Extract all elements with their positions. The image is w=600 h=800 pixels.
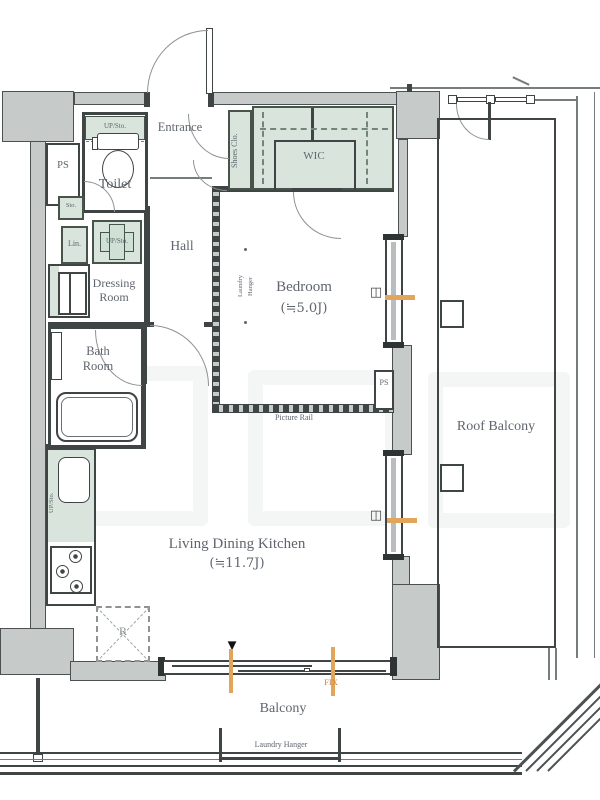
wic-inner-outline: [274, 140, 356, 190]
wic-divider: [311, 108, 314, 142]
bathtub-inner: [61, 397, 133, 437]
label-wic: WIC: [292, 150, 336, 163]
balcony-corner-diagonal: [513, 677, 600, 772]
wall-south-band: [70, 661, 166, 681]
label-up-sto-kitchen: UP/Sto.: [48, 474, 59, 532]
hall-ldk-door-panel: [142, 322, 147, 384]
hall-ldk-door-arc: [150, 325, 209, 386]
label-bedroom-size: (≒5.0J): [257, 301, 351, 317]
label-laundry-hanger-balcony: Laundry Hanger: [244, 740, 318, 750]
washing-machine: [58, 272, 87, 315]
window-end-cap: [390, 657, 397, 676]
label-ldk: Living Dining Kitchen: [148, 535, 326, 553]
label-lin: Lin.: [61, 239, 88, 249]
label-bedroom: Bedroom: [252, 278, 356, 296]
roof-balcony-top-tick: [512, 76, 529, 85]
stove-burner: [70, 580, 83, 593]
roof-balcony-unit: [440, 300, 464, 328]
ldk-south-window: [164, 660, 392, 675]
bedroom-window-sash: [391, 242, 396, 340]
label-ldk-size: (≒11.7J): [172, 556, 302, 572]
label-picture-rail: Picture Rail: [264, 413, 324, 423]
bath-counter: [51, 332, 62, 380]
balcony-railing-line: [0, 772, 522, 775]
bedroom-door-arc: [293, 192, 341, 239]
label-toilet: Toilet: [86, 177, 144, 194]
stove-burner: [56, 565, 69, 578]
label-up-sto-dressing: UP/Sto.: [94, 237, 140, 245]
ldk-south-window-sash: [238, 670, 386, 672]
roof-balcony-top-line: [390, 87, 600, 89]
wall-bedroom-south-picture-rail: [212, 404, 394, 413]
wall-left-strip: [30, 141, 46, 664]
laundry-hanger-dot: [244, 248, 247, 251]
laundry-hanger-bar: [219, 757, 341, 760]
entrance-door-arc: [147, 30, 208, 93]
roof-balcony-right-rail-outer: [594, 92, 595, 658]
label-shoes-closet: Shoes Clo.: [230, 118, 250, 184]
label-entrance: Entrance: [149, 120, 211, 135]
toilet-side-knob: [92, 137, 98, 150]
window-orange-marker: [229, 649, 233, 693]
balcony-left-post: [36, 678, 40, 758]
window-end-cap: [383, 554, 404, 560]
roof-balcony-divider: [548, 648, 550, 680]
label-ps-pillar: PS: [374, 378, 394, 388]
ldk-east-window-sash: [391, 458, 396, 552]
wall-east-lower: [392, 556, 410, 586]
ps-box-bedroom: [374, 370, 394, 410]
roof-balcony-right-rail-inner: [576, 96, 578, 658]
window-orange-marker: [387, 518, 417, 523]
window-orange-marker: [331, 647, 335, 696]
roof-balcony-divider: [555, 648, 557, 680]
kitchen-sink: [58, 457, 90, 503]
label-dressing-room: Dressing Room: [84, 276, 144, 305]
label-hall: Hall: [160, 238, 204, 254]
toilet-tank: [97, 133, 139, 150]
wall-top-left-block: [2, 91, 74, 142]
balcony-railing-line: [0, 752, 522, 754]
label-balcony: Balcony: [248, 701, 318, 718]
balcony-post-foot: [33, 754, 43, 762]
step-mark: [407, 84, 412, 92]
wall-top-band-left: [74, 92, 146, 105]
label-bath-room: Bath Room: [72, 344, 124, 374]
entrance-door-post: [144, 92, 150, 107]
wall-hall-left: [144, 206, 150, 326]
wic-hanger-pipe-left: [262, 112, 264, 184]
window-end-cap: [383, 342, 404, 348]
shoes-closet-door-arc: [193, 160, 227, 191]
wall-bottom-left-block: [0, 628, 74, 675]
balcony-railing-line: [0, 765, 522, 767]
wall-top-band-right: [213, 92, 397, 105]
label-sto: Sto.: [58, 202, 84, 210]
roof-balcony-floor: [437, 118, 556, 648]
wall-east-pillar: [392, 345, 412, 455]
floor-plan: ◫ ◫ ▼ Entrance Shoes Clo. WIC Toilet: [0, 0, 600, 800]
window-handle: [304, 668, 310, 672]
label-refrigerator: R: [108, 624, 138, 638]
wall-east-bottom-block: [392, 584, 440, 680]
fence-rail-thin: [535, 99, 577, 101]
label-up-sto-toilet: UP/Sto.: [87, 122, 143, 130]
washing-machine-divider: [69, 274, 71, 313]
label-roof-balcony: Roof Balcony: [436, 419, 556, 436]
fence-post: [448, 95, 457, 104]
wic-hanger-pipe-right: [366, 112, 368, 184]
wall-east-upper: [398, 139, 408, 237]
label-fix: FIX: [317, 677, 345, 687]
ldk-south-window-sash: [172, 665, 312, 667]
laundry-hanger-dot: [244, 321, 247, 324]
wall-top-right-block: [396, 91, 440, 139]
window-vent-marker: ◫: [369, 284, 383, 300]
label-laundry-bedroom: Laundry: [237, 264, 247, 308]
window-vent-marker: ◫: [369, 507, 383, 523]
window-orange-marker: [385, 295, 415, 300]
label-hanger-bedroom: Hanger: [247, 264, 257, 308]
fence-rail: [495, 97, 527, 102]
wall-bedroom-west: [212, 186, 220, 413]
fence-rail: [457, 97, 487, 102]
entrance-door-post: [208, 92, 214, 107]
fence-post: [526, 95, 535, 104]
stove-burner: [69, 550, 82, 563]
roof-balcony-unit: [440, 464, 464, 492]
wic-hanger-pipe: [260, 128, 388, 130]
label-ps-room: PS: [48, 160, 78, 173]
